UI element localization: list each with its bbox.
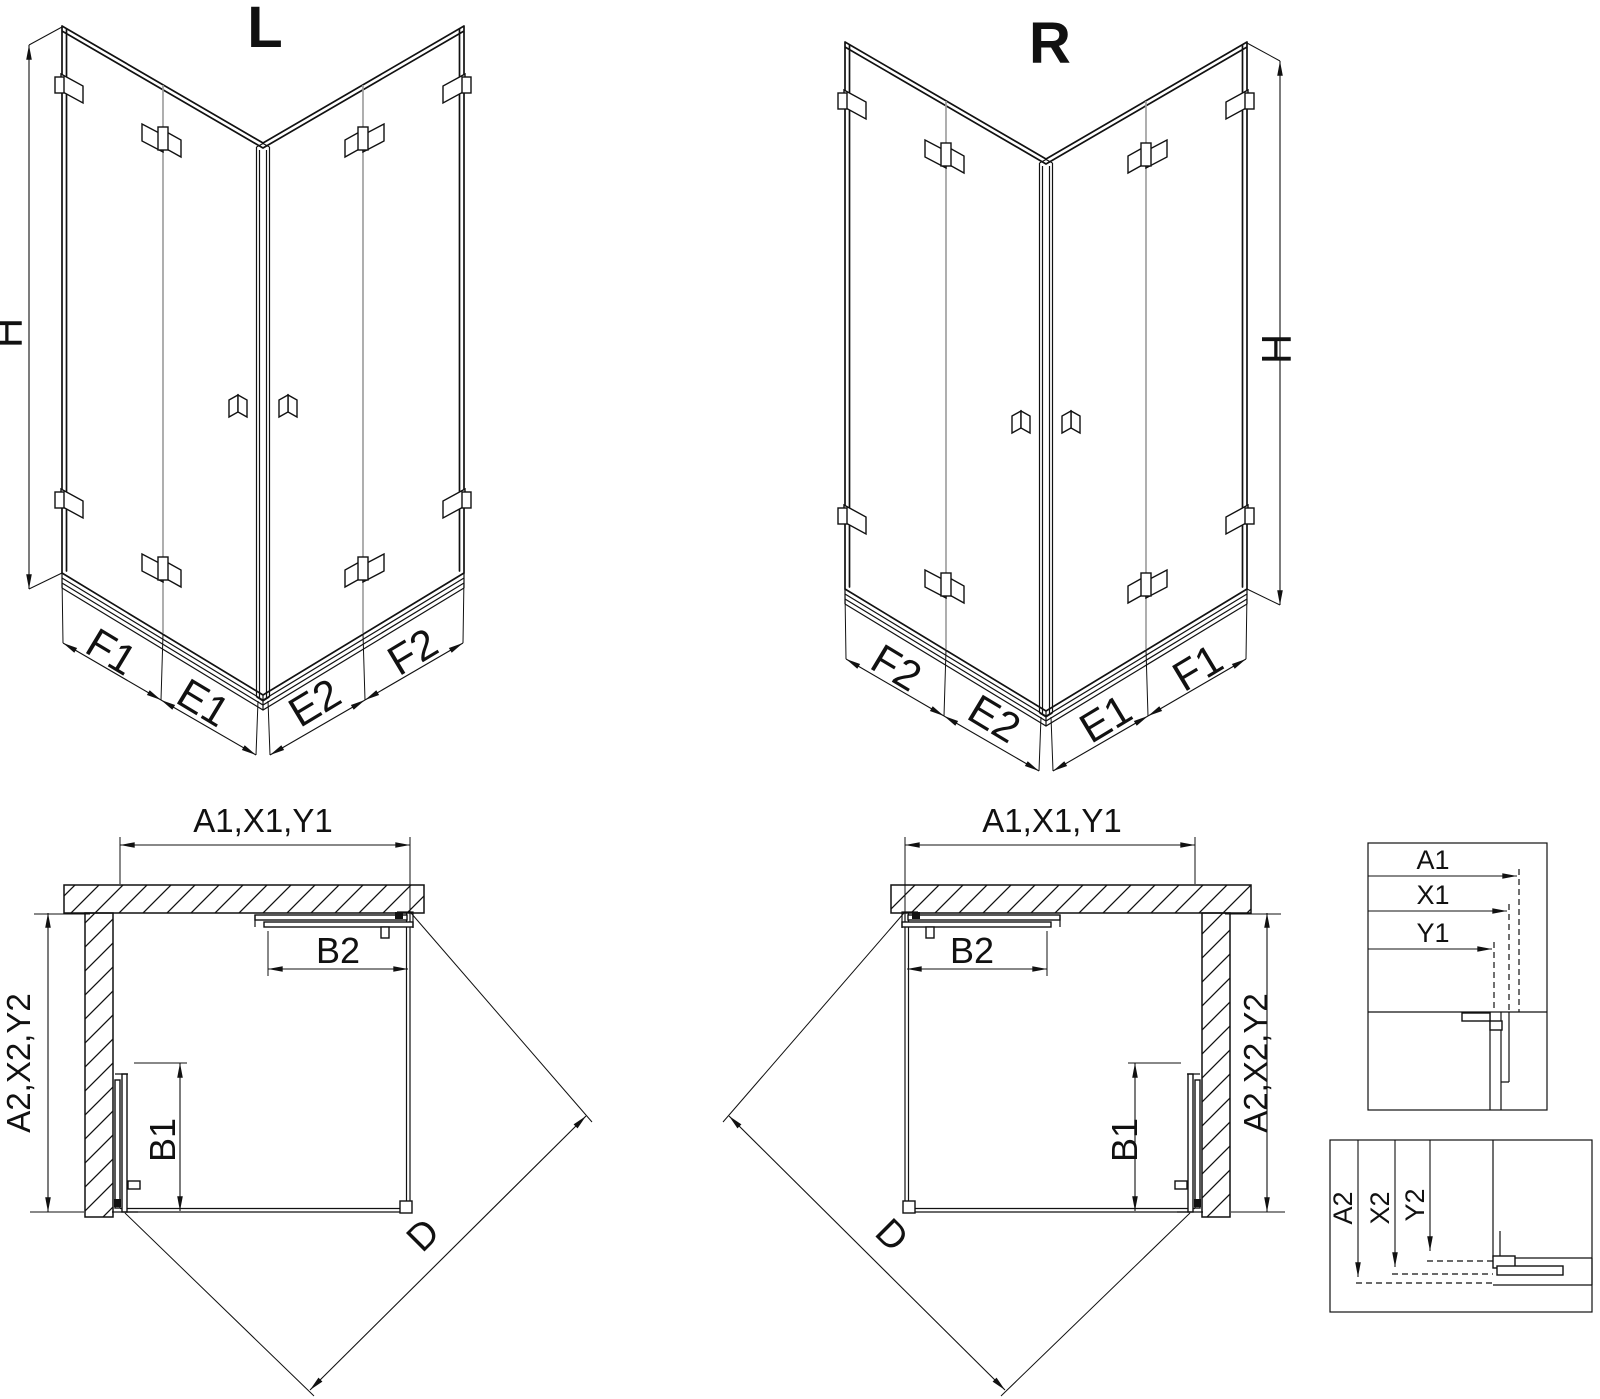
plan-right-diagonal-label: D [867, 1211, 916, 1260]
iso-left-dim-e1: E1 [169, 669, 237, 736]
detail-depth-a2-label: A2 [1328, 1191, 1358, 1224]
plan-right-side-wall [1202, 913, 1230, 1217]
plan-left-structure [30, 837, 592, 1396]
iso-left-height-label: H [0, 318, 31, 348]
iso-view-left: L H F1 E1 E2 F2 [0, 0, 471, 755]
plan-view-right: A1,X1,Y1 A2,X2,Y2 B2 B1 D [723, 802, 1285, 1396]
plan-right-b1-label: B1 [1104, 1118, 1145, 1162]
plan-right-depth-label: A2,X2,Y2 [1237, 993, 1274, 1132]
iso-view-right: R H F2 E2 E1 F1 [838, 11, 1300, 771]
detail-depth-y2-label: Y2 [1400, 1188, 1430, 1221]
plan-right-top-wall [891, 885, 1251, 913]
iso-right-dim-f1: F1 [1164, 635, 1230, 701]
detail-width-a1-label: A1 [1416, 845, 1449, 875]
plan-right-structure [723, 837, 1285, 1396]
iso-right-title: R [1029, 11, 1071, 76]
plan-left-diagonal-label: D [399, 1211, 448, 1260]
plan-view-left: A1,X1,Y1 A2,X2,Y2 B2 B1 D [0, 802, 592, 1396]
plan-left-top-wall [64, 885, 424, 913]
iso-right-height-label: H [1253, 334, 1300, 364]
shower-enclosure-dimension-sheet: L H F1 E1 E2 F2 R H F2 E2 E1 F1 A1,X1,Y1… [0, 0, 1600, 1399]
plan-left-depth-label: A2,X2,Y2 [0, 993, 37, 1132]
technical-drawing-canvas: L H F1 E1 E2 F2 R H F2 E2 E1 F1 A1,X1,Y1… [0, 0, 1600, 1399]
detail-width-y1-label: Y1 [1416, 918, 1449, 948]
detail-width-box: A1 X1 Y1 [1368, 843, 1547, 1110]
detail-width-x1-label: X1 [1416, 880, 1449, 910]
plan-left-b2-label: B2 [316, 930, 360, 971]
plan-left-b1-label: B1 [142, 1118, 183, 1162]
plan-right-width-label: A1,X1,Y1 [982, 802, 1121, 839]
detail-depth-x2-label: X2 [1365, 1191, 1395, 1224]
plan-left-width-label: A1,X1,Y1 [193, 802, 332, 839]
iso-right-dim-e1: E1 [1071, 685, 1139, 752]
plan-right-b2-label: B2 [950, 930, 994, 971]
detail-depth-box: A2 X2 Y2 [1328, 1140, 1592, 1312]
iso-left-title: L [247, 0, 282, 60]
plan-left-side-wall [85, 913, 113, 1217]
iso-left-dim-f1: F1 [78, 619, 144, 685]
